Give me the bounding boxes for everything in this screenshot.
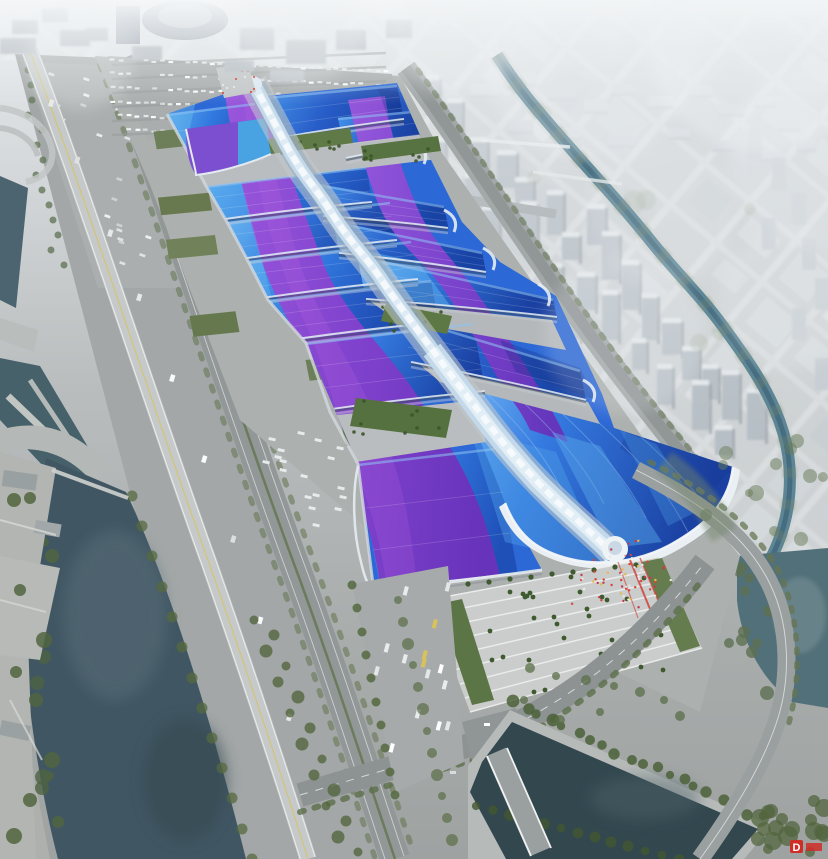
svg-text:D: D [793, 842, 801, 854]
